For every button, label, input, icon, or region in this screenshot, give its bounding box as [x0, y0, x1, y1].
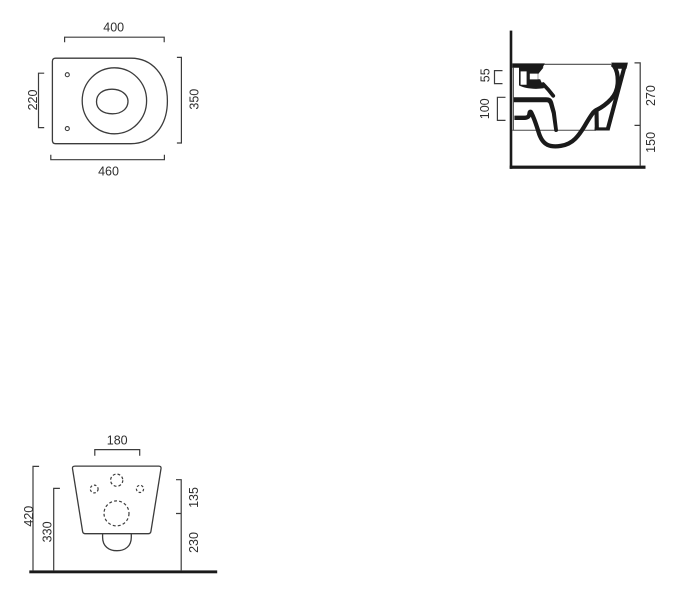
svg-text:150: 150 — [644, 132, 658, 153]
svg-text:230: 230 — [187, 532, 201, 553]
svg-text:460: 460 — [98, 165, 119, 179]
svg-text:400: 400 — [103, 20, 124, 34]
svg-text:420: 420 — [22, 506, 36, 527]
svg-text:270: 270 — [644, 85, 658, 106]
svg-text:220: 220 — [26, 90, 40, 111]
svg-text:330: 330 — [40, 521, 54, 542]
svg-text:180: 180 — [107, 434, 128, 448]
svg-text:135: 135 — [187, 487, 201, 508]
svg-text:350: 350 — [187, 89, 201, 110]
svg-text:100: 100 — [478, 98, 492, 119]
svg-text:55: 55 — [479, 68, 493, 82]
